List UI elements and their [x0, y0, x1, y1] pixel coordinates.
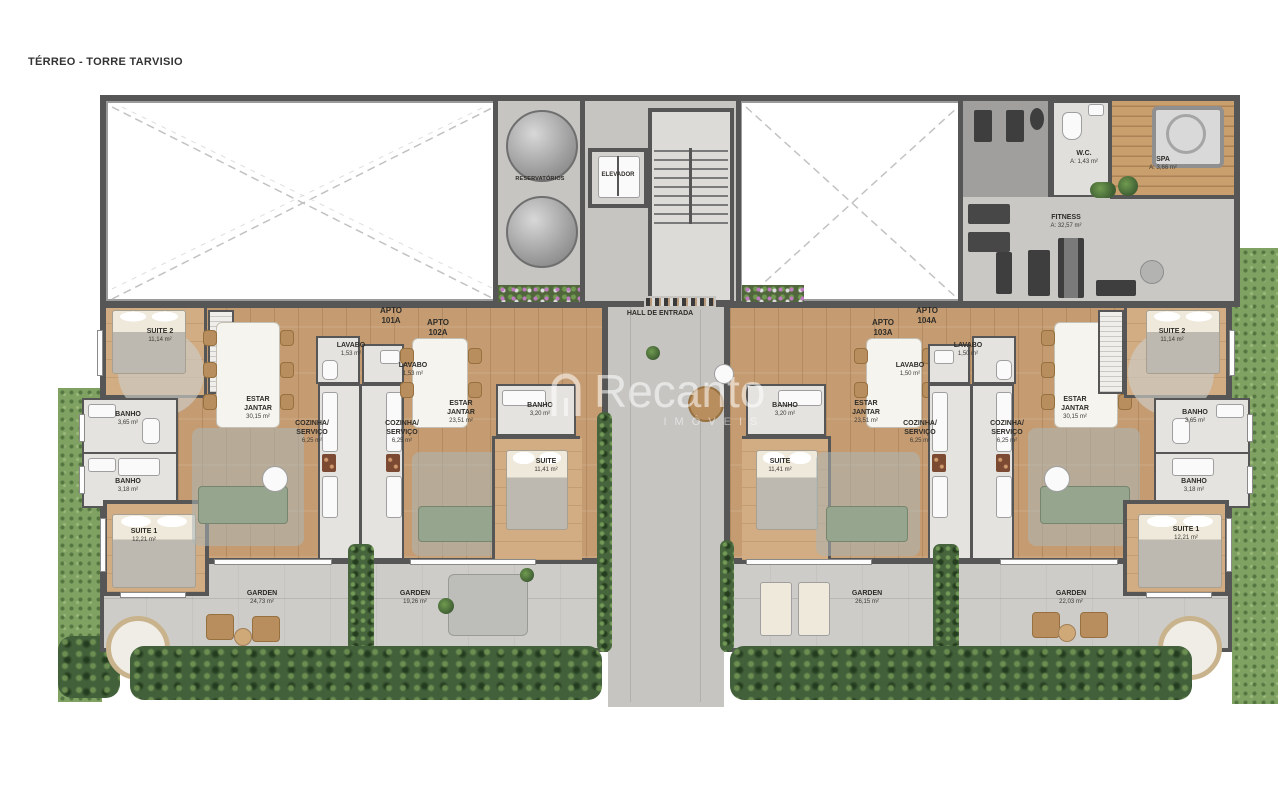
- hall-text: HALL DE ENTRADA: [605, 310, 715, 319]
- wardrobe-icon: [1098, 310, 1124, 394]
- room-name: SUITE 1: [109, 528, 179, 537]
- room-area: 6,25 m²: [972, 438, 1042, 446]
- room-name: GARDEN: [227, 590, 297, 599]
- room-name: ESTAR JANTAR: [831, 400, 901, 418]
- room-label-garden-101: GARDEN24,73 m²: [227, 590, 297, 606]
- room-area: 3,65 m²: [93, 420, 163, 428]
- stove-icon: [322, 454, 336, 472]
- room-name: ESTAR JANTAR: [1040, 396, 1110, 414]
- room-name: BANHO: [750, 402, 820, 411]
- bench-icon: [1096, 280, 1136, 296]
- plant-icon: [1118, 176, 1138, 196]
- weight-rack-icon: [1028, 250, 1050, 296]
- window-icon: [97, 330, 103, 376]
- floorplan-canvas: TÉRREO - TORRE TARVISIO: [0, 0, 1280, 807]
- room-name: BANHO: [1160, 409, 1230, 418]
- reservatorios-text: RESERVATÓRIOS: [500, 176, 580, 183]
- garden-chair-icon: [206, 614, 234, 640]
- room-label-estar-101: ESTAR JANTAR30,15 m²: [223, 396, 293, 421]
- room-area: 26,15 m²: [832, 599, 902, 607]
- room-name: SUITE 2: [1137, 328, 1207, 337]
- room-label-lavabo-103: LAVABO1,50 m²: [875, 362, 945, 378]
- garden-table-icon: [234, 628, 252, 646]
- wc-label: W.C.A: 1,43 m²: [1054, 150, 1114, 166]
- room-name: COZINHA/ SERVIÇO: [885, 420, 955, 438]
- counter-icon: [996, 476, 1012, 518]
- treadmill-icon: [1058, 238, 1084, 298]
- water-tank-icon: [506, 196, 578, 268]
- wc-area: A: 1,43 m²: [1054, 159, 1114, 167]
- room-area: 30,15 m²: [1040, 414, 1110, 422]
- wall: [1048, 101, 1052, 197]
- room-name: BANHO: [1159, 478, 1229, 487]
- side-table-icon: [714, 364, 734, 384]
- garden-chair-icon: [1032, 612, 1060, 638]
- room-area: 3,65 m²: [1160, 418, 1230, 426]
- x-cross-icon: [108, 103, 498, 303]
- room-label-garden-104: GARDEN22,03 m²: [1036, 590, 1106, 606]
- sofa-icon: [826, 506, 908, 542]
- gym-mat-icon: [968, 204, 1010, 224]
- armchair-icon: [262, 466, 288, 492]
- wall: [204, 308, 207, 398]
- room-area: 1,53 m²: [316, 351, 386, 359]
- fitness-area: A: 32,57 m²: [1026, 223, 1106, 231]
- window-icon: [1229, 330, 1235, 376]
- exercise-bike-icon: [974, 110, 992, 142]
- spa-name: SPA: [1133, 156, 1193, 165]
- room-label-lavabo-104: LAVABO1,50 m²: [933, 342, 1003, 358]
- garden-chair-icon: [1080, 612, 1108, 638]
- apto-104a-tag: APTO 104A: [892, 306, 962, 326]
- lounger-icon: [798, 582, 830, 636]
- room-area: 11,41 m²: [511, 467, 581, 475]
- garden-lounge-set-icon: [448, 574, 528, 636]
- apto-tag-text: APTO 102A: [403, 318, 473, 338]
- room-label-suite-102: SUITE11,41 m²: [511, 458, 581, 474]
- window-icon: [120, 592, 186, 598]
- room-area: 11,41 m²: [745, 467, 815, 475]
- room-name: BANHO: [93, 478, 163, 487]
- exercise-bike-icon: [1006, 110, 1024, 142]
- room-name: BANHO: [505, 402, 575, 411]
- bathtub-icon: [118, 458, 160, 476]
- window-icon: [1247, 414, 1253, 442]
- room-label-banho2-104: BANHO3,18 m²: [1159, 478, 1229, 494]
- sink-icon: [88, 458, 116, 472]
- room-label-banho-103: BANHO3,20 m²: [750, 402, 820, 418]
- chair-icon: [1041, 330, 1055, 346]
- chair-icon: [854, 382, 868, 398]
- window-icon: [79, 466, 85, 494]
- toilet-icon: [322, 360, 338, 380]
- hall-entrada-label: HALL DE ENTRADA: [605, 310, 715, 319]
- plan-title: TÉRREO - TORRE TARVISIO: [28, 56, 183, 68]
- bush-row-left: [130, 646, 602, 700]
- fitness-label: FITNESSA: 32,57 m²: [1026, 214, 1106, 230]
- entrance-doormat-icon: [646, 298, 714, 306]
- counter-icon: [386, 476, 402, 518]
- counter-icon: [932, 476, 948, 518]
- vine: [720, 540, 734, 652]
- room-name: GARDEN: [832, 590, 902, 599]
- chair-icon: [203, 362, 217, 378]
- hedge: [933, 544, 959, 662]
- chair-icon: [280, 330, 294, 346]
- garden-chair-icon: [252, 616, 280, 642]
- room-label-banho-102: BANHO3,20 m²: [505, 402, 575, 418]
- room-label-estar-104: ESTAR JANTAR30,15 m²: [1040, 396, 1110, 421]
- window-icon: [1226, 518, 1232, 572]
- room-name: ESTAR JANTAR: [223, 396, 293, 414]
- window-icon: [1247, 466, 1253, 494]
- chair-icon: [854, 348, 868, 364]
- wc-name: W.C.: [1054, 150, 1114, 159]
- room-area: 3,20 m²: [505, 411, 575, 419]
- entrance-corridor: [608, 302, 724, 707]
- lounger-icon: [760, 582, 792, 636]
- room-name: BANHO: [93, 411, 163, 420]
- wall: [493, 95, 498, 307]
- planter-icon: [1090, 182, 1116, 198]
- x-cross-icon: [742, 103, 962, 303]
- chair-icon: [280, 362, 294, 378]
- counter-icon: [322, 476, 338, 518]
- garden-table-icon: [1058, 624, 1076, 642]
- room-label-cozinha-104: COZINHA/ SERVIÇO6,25 m²: [972, 420, 1042, 445]
- room-area: 19,26 m²: [380, 599, 450, 607]
- bush-row-right: [730, 646, 1192, 700]
- room-area: 1,50 m²: [875, 371, 945, 379]
- room-name: LAVABO: [316, 342, 386, 351]
- wall: [492, 436, 580, 439]
- room-name: LAVABO: [933, 342, 1003, 351]
- chair-icon: [203, 330, 217, 346]
- plant-icon: [646, 346, 660, 360]
- glass-door-icon: [746, 559, 872, 565]
- reservatorios-label: RESERVATÓRIOS: [500, 176, 580, 183]
- apto-tag-text: APTO 104A: [892, 306, 962, 326]
- room-area: 23,51 m²: [426, 418, 496, 426]
- stove-icon: [386, 454, 400, 472]
- window-icon: [79, 414, 85, 442]
- room-area: 11,14 m²: [125, 337, 195, 345]
- wall: [359, 384, 362, 560]
- stair-divider: [689, 148, 692, 224]
- window-icon: [1146, 592, 1212, 598]
- unrepresented-area-right: [740, 101, 960, 301]
- room-area: 6,25 m²: [885, 438, 955, 446]
- room-area: 11,14 m²: [1137, 337, 1207, 345]
- lounge-chair-icon: [688, 386, 724, 422]
- vine: [597, 412, 612, 652]
- room-area: 22,03 m²: [1036, 599, 1106, 607]
- room-label-garden-102: GARDEN19,26 m²: [380, 590, 450, 606]
- sofa-icon: [418, 506, 500, 542]
- wall: [970, 384, 973, 560]
- room-name: LAVABO: [378, 362, 448, 371]
- room-area: 3,18 m²: [93, 487, 163, 495]
- room-label-suite2-104: SUITE 211,14 m²: [1137, 328, 1207, 344]
- room-area: 6,25 m²: [277, 438, 347, 446]
- corridor-joint: [630, 302, 631, 702]
- chair-icon: [400, 382, 414, 398]
- room-label-banho1-104: BANHO3,65 m²: [1160, 409, 1230, 425]
- room-name: GARDEN: [380, 590, 450, 599]
- room-name: ESTAR JANTAR: [426, 400, 496, 418]
- window-icon: [100, 518, 106, 572]
- room-name: SUITE: [511, 458, 581, 467]
- room-area: 3,18 m²: [1159, 487, 1229, 495]
- sink-icon: [1088, 104, 1104, 116]
- gym-ball-icon: [1140, 260, 1164, 284]
- plant-icon: [520, 568, 534, 582]
- elevador-label: ELEVADOR: [588, 172, 648, 180]
- room-area: 1,53 m²: [378, 371, 448, 379]
- bed-icon: [112, 514, 196, 588]
- room-label-garden-103: GARDEN26,15 m²: [832, 590, 902, 606]
- wall: [492, 436, 495, 562]
- corridor-joint: [700, 302, 701, 702]
- room-label-estar-102: ESTAR JANTAR23,51 m²: [426, 400, 496, 425]
- room-label-banho1-101: BANHO3,65 m²: [93, 411, 163, 427]
- room-label-lavabo-102: LAVABO1,53 m²: [378, 362, 448, 378]
- room-label-lavabo-101: LAVABO1,53 m²: [316, 342, 386, 358]
- room-label-cozinha-101: COZINHA/ SERVIÇO6,25 m²: [277, 420, 347, 445]
- room-label-suite1-104: SUITE 112,21 m²: [1151, 526, 1221, 542]
- stove-icon: [996, 454, 1010, 472]
- room-name: SUITE 2: [125, 328, 195, 337]
- bathtub-icon: [1172, 458, 1214, 476]
- room-name: COZINHA/ SERVIÇO: [277, 420, 347, 438]
- glass-door-icon: [214, 559, 332, 565]
- room-name: SUITE: [745, 458, 815, 467]
- gym-chair-icon: [1030, 108, 1044, 130]
- chair-icon: [468, 348, 482, 364]
- wall: [1124, 308, 1127, 398]
- room-area: 6,25 m²: [367, 438, 437, 446]
- fitness-name: FITNESS: [1026, 214, 1106, 223]
- wall: [736, 95, 741, 307]
- room-area: 12,21 m²: [109, 537, 179, 545]
- water-tank-icon: [506, 110, 578, 182]
- room-name: GARDEN: [1036, 590, 1106, 599]
- room-label-suite2-101: SUITE 211,14 m²: [125, 328, 195, 344]
- room-area: 24,73 m²: [227, 599, 297, 607]
- chair-icon: [468, 382, 482, 398]
- room-label-suite-103: SUITE11,41 m²: [745, 458, 815, 474]
- hedge: [348, 544, 374, 662]
- unrepresented-area-left: [106, 101, 496, 301]
- wall: [742, 436, 830, 439]
- glass-door-icon: [410, 559, 536, 565]
- room-name: LAVABO: [875, 362, 945, 371]
- room-name: COZINHA/ SERVIÇO: [972, 420, 1042, 438]
- room-label-banho2-101: BANHO3,18 m²: [93, 478, 163, 494]
- glass-door-icon: [1000, 559, 1118, 565]
- room-name: SUITE 1: [1151, 526, 1221, 535]
- room-label-cozinha-103: COZINHA/ SERVIÇO6,25 m²: [885, 420, 955, 445]
- room-label-suite1-101: SUITE 112,21 m²: [109, 528, 179, 544]
- room-area: 3,20 m²: [750, 411, 820, 419]
- toilet-icon: [996, 360, 1012, 380]
- room-area: 1,50 m²: [933, 351, 1003, 359]
- spa-tub-ring-icon: [1166, 114, 1206, 154]
- toilet-icon: [1062, 112, 1082, 140]
- room-area: 12,21 m²: [1151, 535, 1221, 543]
- spin-bike-icon: [996, 252, 1012, 294]
- spa-area: A: 3,66 m²: [1133, 165, 1193, 173]
- chair-icon: [1041, 362, 1055, 378]
- apto-102a-tag: APTO 102A: [403, 318, 473, 338]
- spa-label: SPAA: 3,66 m²: [1133, 156, 1193, 172]
- stove-icon: [932, 454, 946, 472]
- elevador-text: ELEVADOR: [588, 172, 648, 180]
- armchair-icon: [1044, 466, 1070, 492]
- chair-icon: [203, 394, 217, 410]
- gym-mat-icon: [968, 232, 1010, 252]
